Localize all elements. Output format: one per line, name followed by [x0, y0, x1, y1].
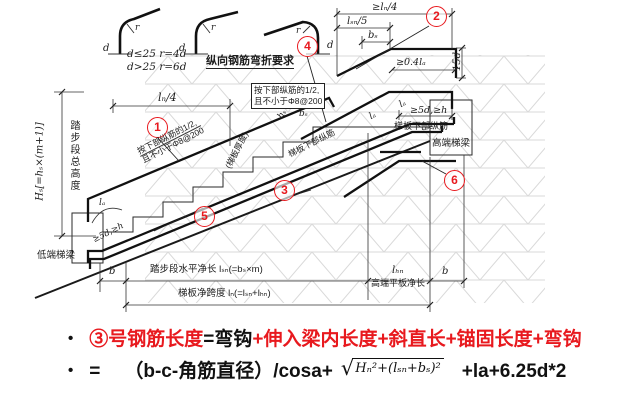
note1-rebar3-length-label: ③号钢筋长度 [89, 328, 203, 352]
note2-equals: = [89, 360, 100, 384]
callout-3: 3 [274, 180, 295, 201]
hook-r-label-2: r [211, 24, 215, 34]
dim-ge5dh-high: ≥5d,≥h [410, 106, 447, 116]
callout-6: 6 [444, 170, 465, 191]
hook-r-label-3: r [296, 27, 300, 37]
dim-b-right: b [442, 266, 448, 277]
callout-4: 4 [297, 36, 318, 57]
rebar-spacing-note-box: 按下部纵筋的1/2, 且不小于Φ8@200 [251, 83, 325, 109]
dim-ge-ln4: ≥lₙ/4 [372, 2, 397, 13]
dim-ln-total: 梯板净跨度 lₙ(=lₛₙ+lₕₙ) [178, 289, 271, 299]
note2-formula-part1: （b-c-角筋直径）/cosa+ [124, 360, 333, 384]
callout-2: 2 [426, 6, 447, 27]
stair-detail-drawing [0, 0, 640, 318]
high-end-beam-label: 高端梯梁 [432, 139, 470, 149]
hook-d-label-1: d [103, 43, 109, 54]
radical-expression: Hₙ²+(lₛₙ+bₛ)² [352, 358, 443, 377]
dim-lsn5: lₛₙ/5 [347, 16, 367, 27]
note-box-line-2: 且不小于Φ8@200 [254, 96, 322, 107]
stair-rebar-detail-page: 1 2 3 4 5 6 d≤25 r=4d d>25 r=6d 纵向钢筋弯折要求… [0, 0, 640, 416]
dim-b-left: b [109, 266, 115, 277]
dim-ge-04la: ≥0.4lₐ [396, 58, 426, 68]
dim-lhn-caption: 高端平板净长 [371, 279, 425, 289]
bend-title: 纵向钢筋弯折要求 [206, 55, 294, 69]
bullet-1: • [68, 330, 73, 349]
dim-ln4: lₙ/4 [158, 92, 177, 104]
hook-shape-2 [196, 12, 238, 54]
note2-formula-part2: +la+6.25d*2 [462, 360, 567, 384]
bend-rule-2: d>25 r=6d [127, 62, 186, 74]
bend-rule-1: d≤25 r=4d [127, 49, 186, 61]
dim-bs-top: bₛ [368, 30, 378, 41]
dim-lsn-total: 踏步段水平净长 lₛₙ(=bₛ×m) [150, 265, 263, 275]
dim-lhn: lₕₙ [392, 265, 404, 276]
callout-5: 5 [194, 206, 215, 227]
hook-d-label-3: d [327, 40, 333, 51]
hook-r-label-1: r [135, 24, 139, 34]
note1-equals-hook: =弯钩 [203, 328, 252, 352]
note-box-line-1: 按下部纵筋的1/2, [254, 85, 322, 96]
note-line-2: • = （b-c-角筋直径）/cosa+ √ Hₙ²+(lₛₙ+bₛ)² +la… [68, 360, 566, 384]
sqrt-radical: √ Hₙ²+(lₛₙ+bₛ)² [341, 358, 444, 379]
dim-la-low: lₐ [99, 199, 105, 209]
hook-d-label-2: d [179, 43, 185, 54]
bottom-bars-label-high: 梯板下部纵筋 [394, 122, 448, 132]
dim-15d: 15d [452, 52, 463, 71]
dim-bs-step: bₛ [299, 110, 308, 120]
note1-length-terms: +伸入梁内长度+斜直长+锚固长度+弯钩 [252, 328, 581, 352]
dim-Hs: Hₛ[=hₛ×(m+1)] [35, 92, 46, 232]
low-end-beam-label: 低端梯梁 [37, 251, 75, 261]
dim-Hs-caption: 踏步段总高度 [68, 120, 79, 210]
bullet-2: • [68, 362, 73, 381]
note-line-1: • ③号钢筋长度 =弯钩 +伸入梁内长度+斜直长+锚固长度+弯钩 [68, 328, 582, 352]
